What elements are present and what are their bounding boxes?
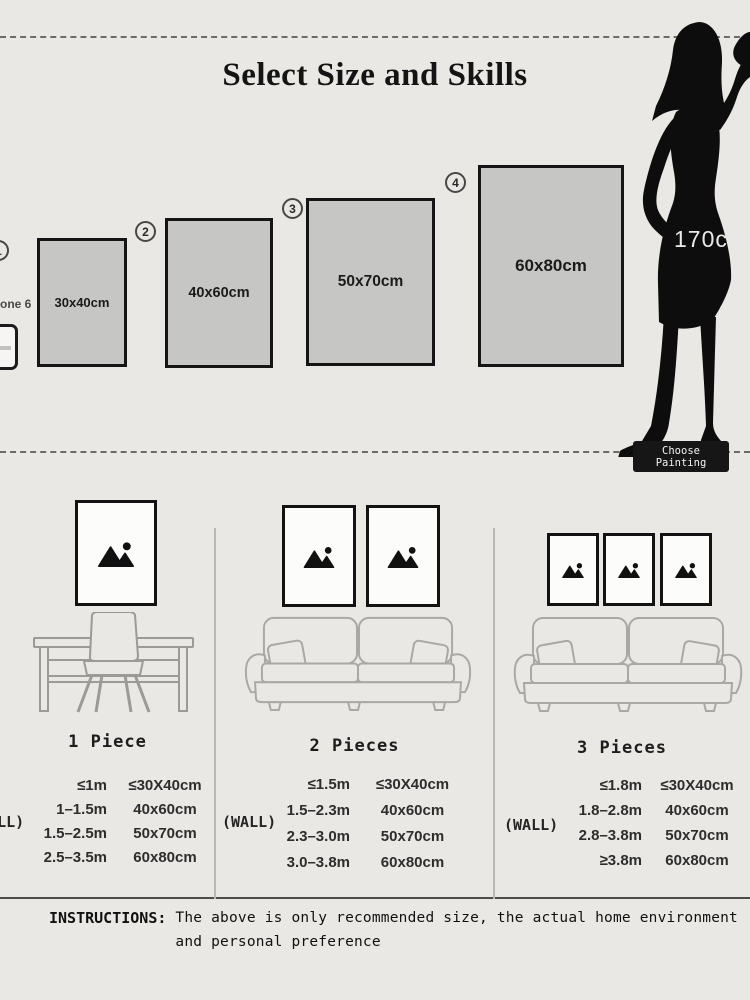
table-row: 2.5–3.5m60x80cm xyxy=(12,845,215,869)
instructions-label: INSTRUCTIONS: xyxy=(49,906,166,954)
image-placeholder-icon xyxy=(386,545,420,568)
size-table-1piece: ≤1m≤30X40cm 1–1.5m40x60cm 1.5–2.5m50x70c… xyxy=(12,773,215,869)
section-rule xyxy=(0,897,750,899)
size-swatch-40x60: 40x60cm xyxy=(165,218,273,368)
section-label-1piece: 1 Piece xyxy=(0,732,215,752)
wall-frame xyxy=(366,505,440,607)
table-row: 1–1.5m40x60cm xyxy=(12,797,215,821)
table-row: ≤1.8m≤30X40cm xyxy=(540,773,747,798)
badge-4: 4 xyxy=(445,172,466,193)
image-placeholder-icon xyxy=(617,562,641,578)
phone-caption: one 6 xyxy=(0,297,31,311)
table-row: 1.5–2.5m50x70cm xyxy=(12,821,215,845)
size-table-3pieces: ≤1.8m≤30X40cm 1.8–2.8m40x60cm 2.8–3.8m50… xyxy=(540,773,747,873)
image-placeholder-icon xyxy=(674,562,698,578)
height-label: 170cm xyxy=(674,226,748,253)
badge-3: 3 xyxy=(282,198,303,219)
section-label-3pieces: 3 Pieces xyxy=(494,738,750,758)
wall-frame xyxy=(660,533,712,606)
size-swatch-60x80: 60x80cm xyxy=(478,165,624,367)
wall-frame xyxy=(547,533,599,606)
wall-frame xyxy=(75,500,157,606)
table-row: 2.3–3.0m50x70cm xyxy=(245,823,465,849)
table-row: 1.5–2.3m40x60cm xyxy=(245,797,465,823)
wall-frame xyxy=(603,533,655,606)
column-divider xyxy=(493,528,495,899)
table-row: 2.8–3.8m50x70cm xyxy=(540,823,747,848)
instructions-text: The above is only recommended size, the … xyxy=(175,906,739,954)
desk-chair-drawing xyxy=(32,612,195,714)
badge-1: 1 xyxy=(0,240,9,261)
table-row: ≤1.5m≤30X40cm xyxy=(245,771,465,797)
table-row: ≤1m≤30X40cm xyxy=(12,773,215,797)
section-label-2pieces: 2 Pieces xyxy=(215,736,494,756)
instructions: INSTRUCTIONS: The above is only recommen… xyxy=(49,906,739,954)
image-placeholder-icon xyxy=(96,540,136,567)
sofa-drawing xyxy=(243,610,473,711)
image-placeholder-icon xyxy=(302,545,336,568)
size-swatch-30x40: 30x40cm xyxy=(37,238,127,367)
choose-painting-button[interactable]: Choose Painting xyxy=(633,441,729,472)
size-table-2pieces: ≤1.5m≤30X40cm 1.5–2.3m40x60cm 2.3–3.0m50… xyxy=(245,771,465,875)
table-row: 3.0–3.8m60x80cm xyxy=(245,849,465,875)
size-swatch-50x70: 50x70cm xyxy=(306,198,435,366)
sofa-drawing xyxy=(509,610,747,712)
table-row: 1.8–2.8m40x60cm xyxy=(540,798,747,823)
image-placeholder-icon xyxy=(561,562,585,578)
badge-2: 2 xyxy=(135,221,156,242)
table-row: ≥3.8m60x80cm xyxy=(540,848,747,873)
wall-frame xyxy=(282,505,356,607)
size-guide-infographic: Select Size and Skills one 6 1 2 3 4 30x… xyxy=(0,0,750,1000)
phone-icon xyxy=(0,324,18,370)
